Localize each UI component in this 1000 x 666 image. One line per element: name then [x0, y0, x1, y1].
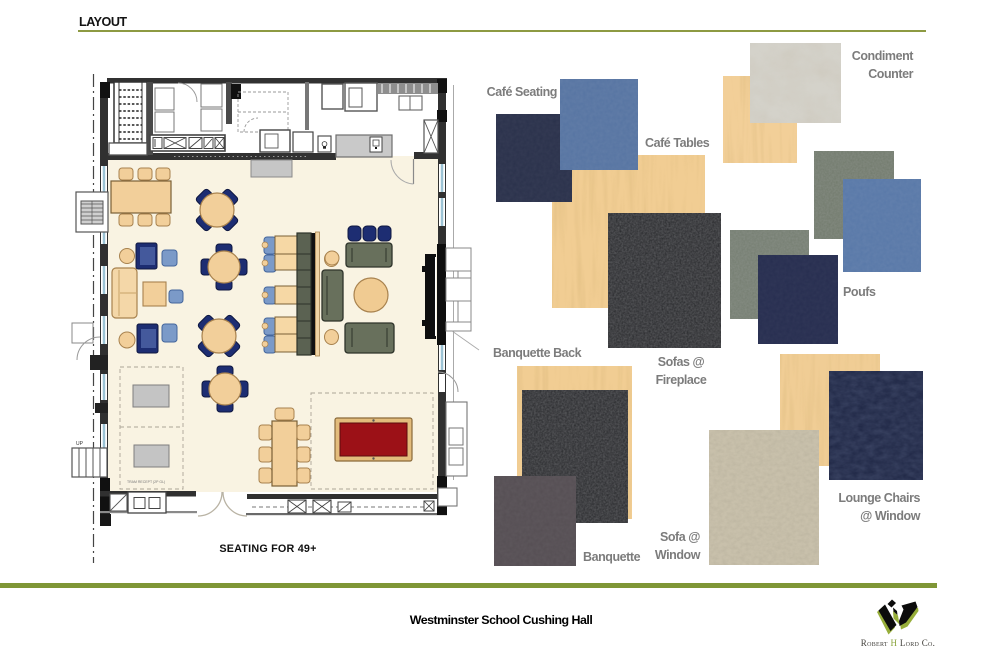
svg-text:TRAM RECEPT (2P GL): TRAM RECEPT (2P GL) — [127, 480, 165, 484]
svg-text:UP: UP — [76, 441, 84, 447]
